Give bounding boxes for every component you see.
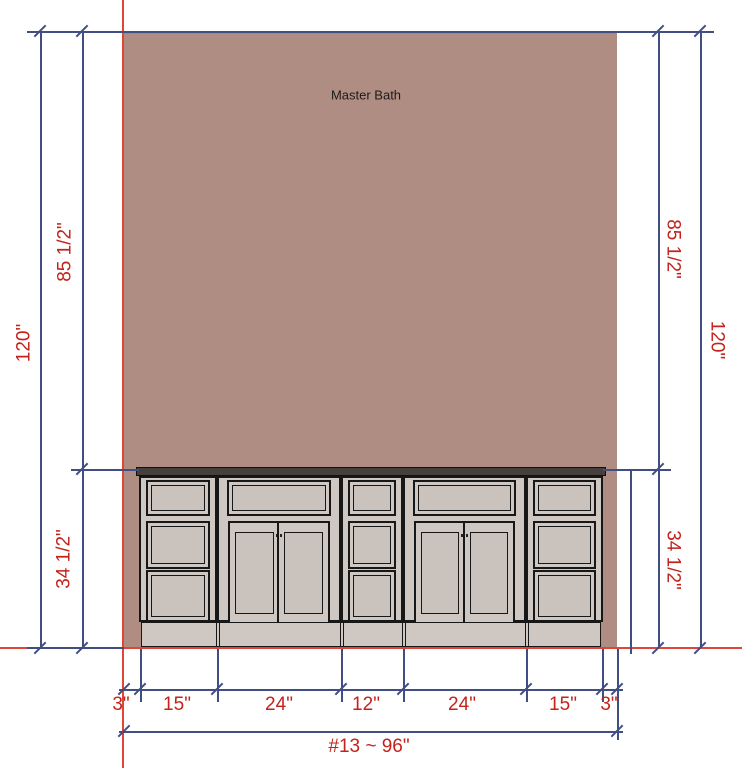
drawer[interactable] — [348, 521, 396, 569]
room-label[interactable]: Master Bath — [331, 88, 401, 103]
cabinet-drawer-bank-15[interactable] — [526, 476, 603, 622]
drawer-panel — [353, 485, 391, 511]
drawer[interactable] — [533, 480, 596, 516]
dim-label-right-34[interactable]: 34 1/2" — [664, 530, 683, 590]
drawer-panel — [232, 485, 326, 511]
dim-line-left-85-34 — [82, 32, 84, 648]
dim-label-12[interactable]: 12" — [352, 695, 380, 714]
extension-line — [217, 649, 219, 702]
drawer-panel — [538, 526, 591, 564]
elevation-drawing: Master Bath — [0, 0, 742, 768]
toe-kick-joint-line — [525, 623, 526, 646]
toe-kick-joint-line — [402, 623, 403, 646]
door-panel — [421, 532, 459, 614]
top-drawer[interactable] — [413, 480, 516, 516]
drawer[interactable] — [533, 570, 596, 622]
countertop[interactable] — [136, 467, 606, 476]
dim-label-right-120[interactable]: 120" — [708, 321, 727, 359]
dim-label-24[interactable]: 24" — [265, 695, 293, 714]
door-knob — [280, 534, 282, 537]
dim-label-15b[interactable]: 15" — [549, 695, 577, 714]
dim-line-overall — [119, 731, 623, 733]
cabinet-drawer-bank-15[interactable] — [139, 476, 217, 622]
extension-line-right-vanity — [630, 470, 632, 654]
drawer[interactable] — [146, 570, 210, 622]
wall-corner-line — [122, 0, 124, 768]
drawer-panel — [538, 575, 591, 617]
toe-kick-joint-line — [405, 623, 406, 646]
extension-line-counter-right — [603, 469, 671, 471]
cabinet-door-base-24[interactable] — [403, 476, 526, 622]
drawer-panel — [418, 485, 511, 511]
dim-line-segments — [119, 689, 623, 691]
dim-label-filler-right[interactable]: 3" — [600, 695, 617, 714]
dim-label-left-120[interactable]: 120" — [15, 324, 34, 362]
dim-label-24b[interactable]: 24" — [448, 695, 476, 714]
extension-line — [341, 649, 343, 702]
cabinet-door-right[interactable] — [277, 521, 330, 625]
drawer[interactable] — [348, 480, 396, 516]
cabinet-door-left[interactable] — [228, 521, 281, 625]
toe-kick-joint-line — [216, 623, 217, 646]
door-panel — [235, 532, 274, 614]
drawer[interactable] — [146, 521, 210, 569]
dim-label-filler-left[interactable]: 3" — [112, 695, 129, 714]
toe-kick-joint-line — [219, 623, 220, 646]
door-panel — [470, 532, 508, 614]
toe-kick[interactable] — [141, 622, 601, 647]
dim-label-right-85[interactable]: 85 1/2" — [664, 219, 683, 279]
extension-line — [403, 649, 405, 702]
drawer-panel — [353, 575, 391, 617]
extension-line-ceiling — [27, 31, 714, 33]
dim-label-left-85[interactable]: 85 1/2" — [56, 222, 75, 282]
cabinet-door-left[interactable] — [414, 521, 466, 625]
dim-label-overall[interactable]: #13 ~ 96" — [328, 737, 409, 756]
cabinet-door-right[interactable] — [463, 521, 515, 625]
drawer[interactable] — [146, 480, 210, 516]
drawer[interactable] — [533, 521, 596, 569]
cabinet-door-base-24[interactable] — [217, 476, 341, 622]
dim-label-left-34[interactable]: 34 1/2" — [55, 529, 74, 589]
drawer-panel — [538, 485, 591, 511]
door-knob — [466, 534, 468, 537]
toe-kick-joint-line — [528, 623, 529, 646]
toe-kick-joint-line — [343, 623, 344, 646]
dim-line-right-120 — [700, 32, 702, 648]
dim-label-15[interactable]: 15" — [163, 695, 191, 714]
top-drawer[interactable] — [227, 480, 331, 516]
cabinet-drawer-bank-12[interactable] — [341, 476, 403, 622]
extension-line — [526, 649, 528, 702]
door-panel — [284, 532, 323, 614]
drawer-panel — [151, 575, 205, 617]
extension-line — [140, 649, 142, 702]
drawer[interactable] — [348, 570, 396, 622]
drawer-panel — [151, 526, 205, 564]
dim-line-right-85-34 — [658, 32, 660, 648]
drawer-panel — [151, 485, 205, 511]
toe-kick-joint-line — [340, 623, 341, 646]
drawer-panel — [353, 526, 391, 564]
dim-line-left-120 — [40, 32, 42, 648]
